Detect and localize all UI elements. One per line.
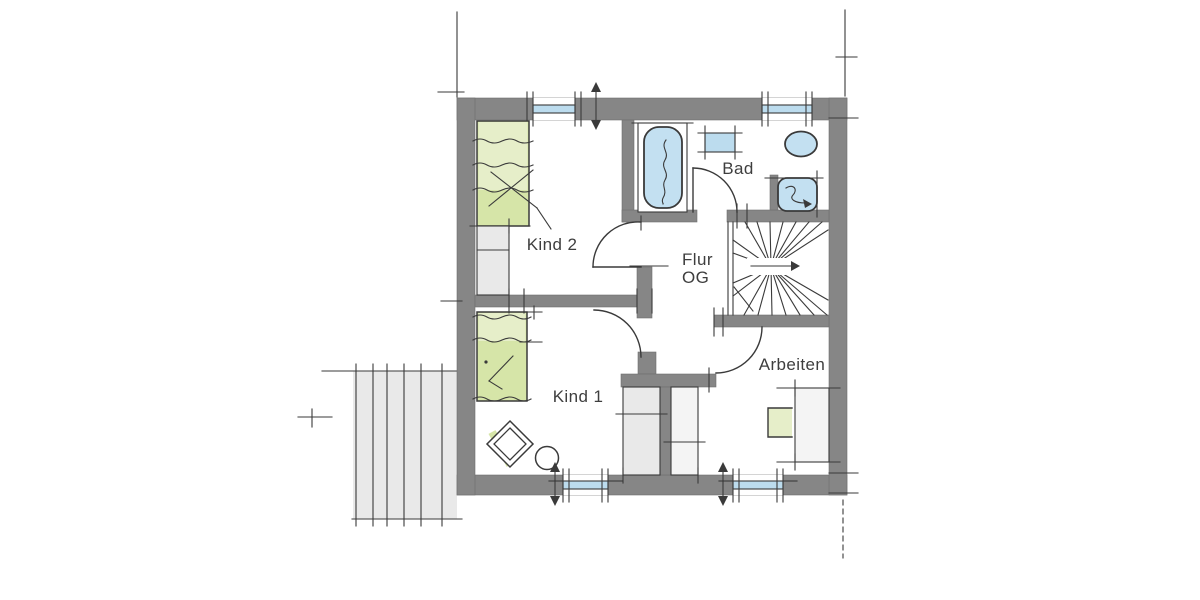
bed-kind2 xyxy=(473,121,551,229)
room-label-flur: Flur OG xyxy=(682,251,713,287)
chair-arbeiten xyxy=(768,408,792,437)
wardrobe-kind2 xyxy=(470,219,530,295)
bedroom2-furniture xyxy=(470,121,551,295)
flur-label-line1: Flur xyxy=(682,251,713,269)
balcony xyxy=(322,364,463,526)
room-label-arbeiten: Arbeiten xyxy=(759,355,826,375)
bathtub xyxy=(638,123,687,212)
door-kind1 xyxy=(594,310,641,357)
flur-label-line2: OG xyxy=(682,269,713,287)
office-furniture xyxy=(768,380,840,470)
room-label-bad: Bad xyxy=(722,159,753,179)
floorplan-drawing xyxy=(0,0,1200,600)
staircase xyxy=(728,222,828,315)
desk-kind1 xyxy=(487,421,533,467)
door-kind2 xyxy=(593,222,641,267)
window-bad xyxy=(762,92,812,126)
toilet xyxy=(785,132,817,157)
closets xyxy=(616,387,705,475)
room-label-kind1: Kind 1 xyxy=(553,387,604,407)
bedroom1-furniture xyxy=(473,306,559,470)
window-kind2 xyxy=(527,92,581,126)
room-label-kind2: Kind 2 xyxy=(527,235,578,255)
bed-kind1 xyxy=(473,306,542,401)
floorplan-page: { "floorplan": { "rooms": { "kind2": { "… xyxy=(0,0,1200,600)
sink xyxy=(698,126,742,159)
